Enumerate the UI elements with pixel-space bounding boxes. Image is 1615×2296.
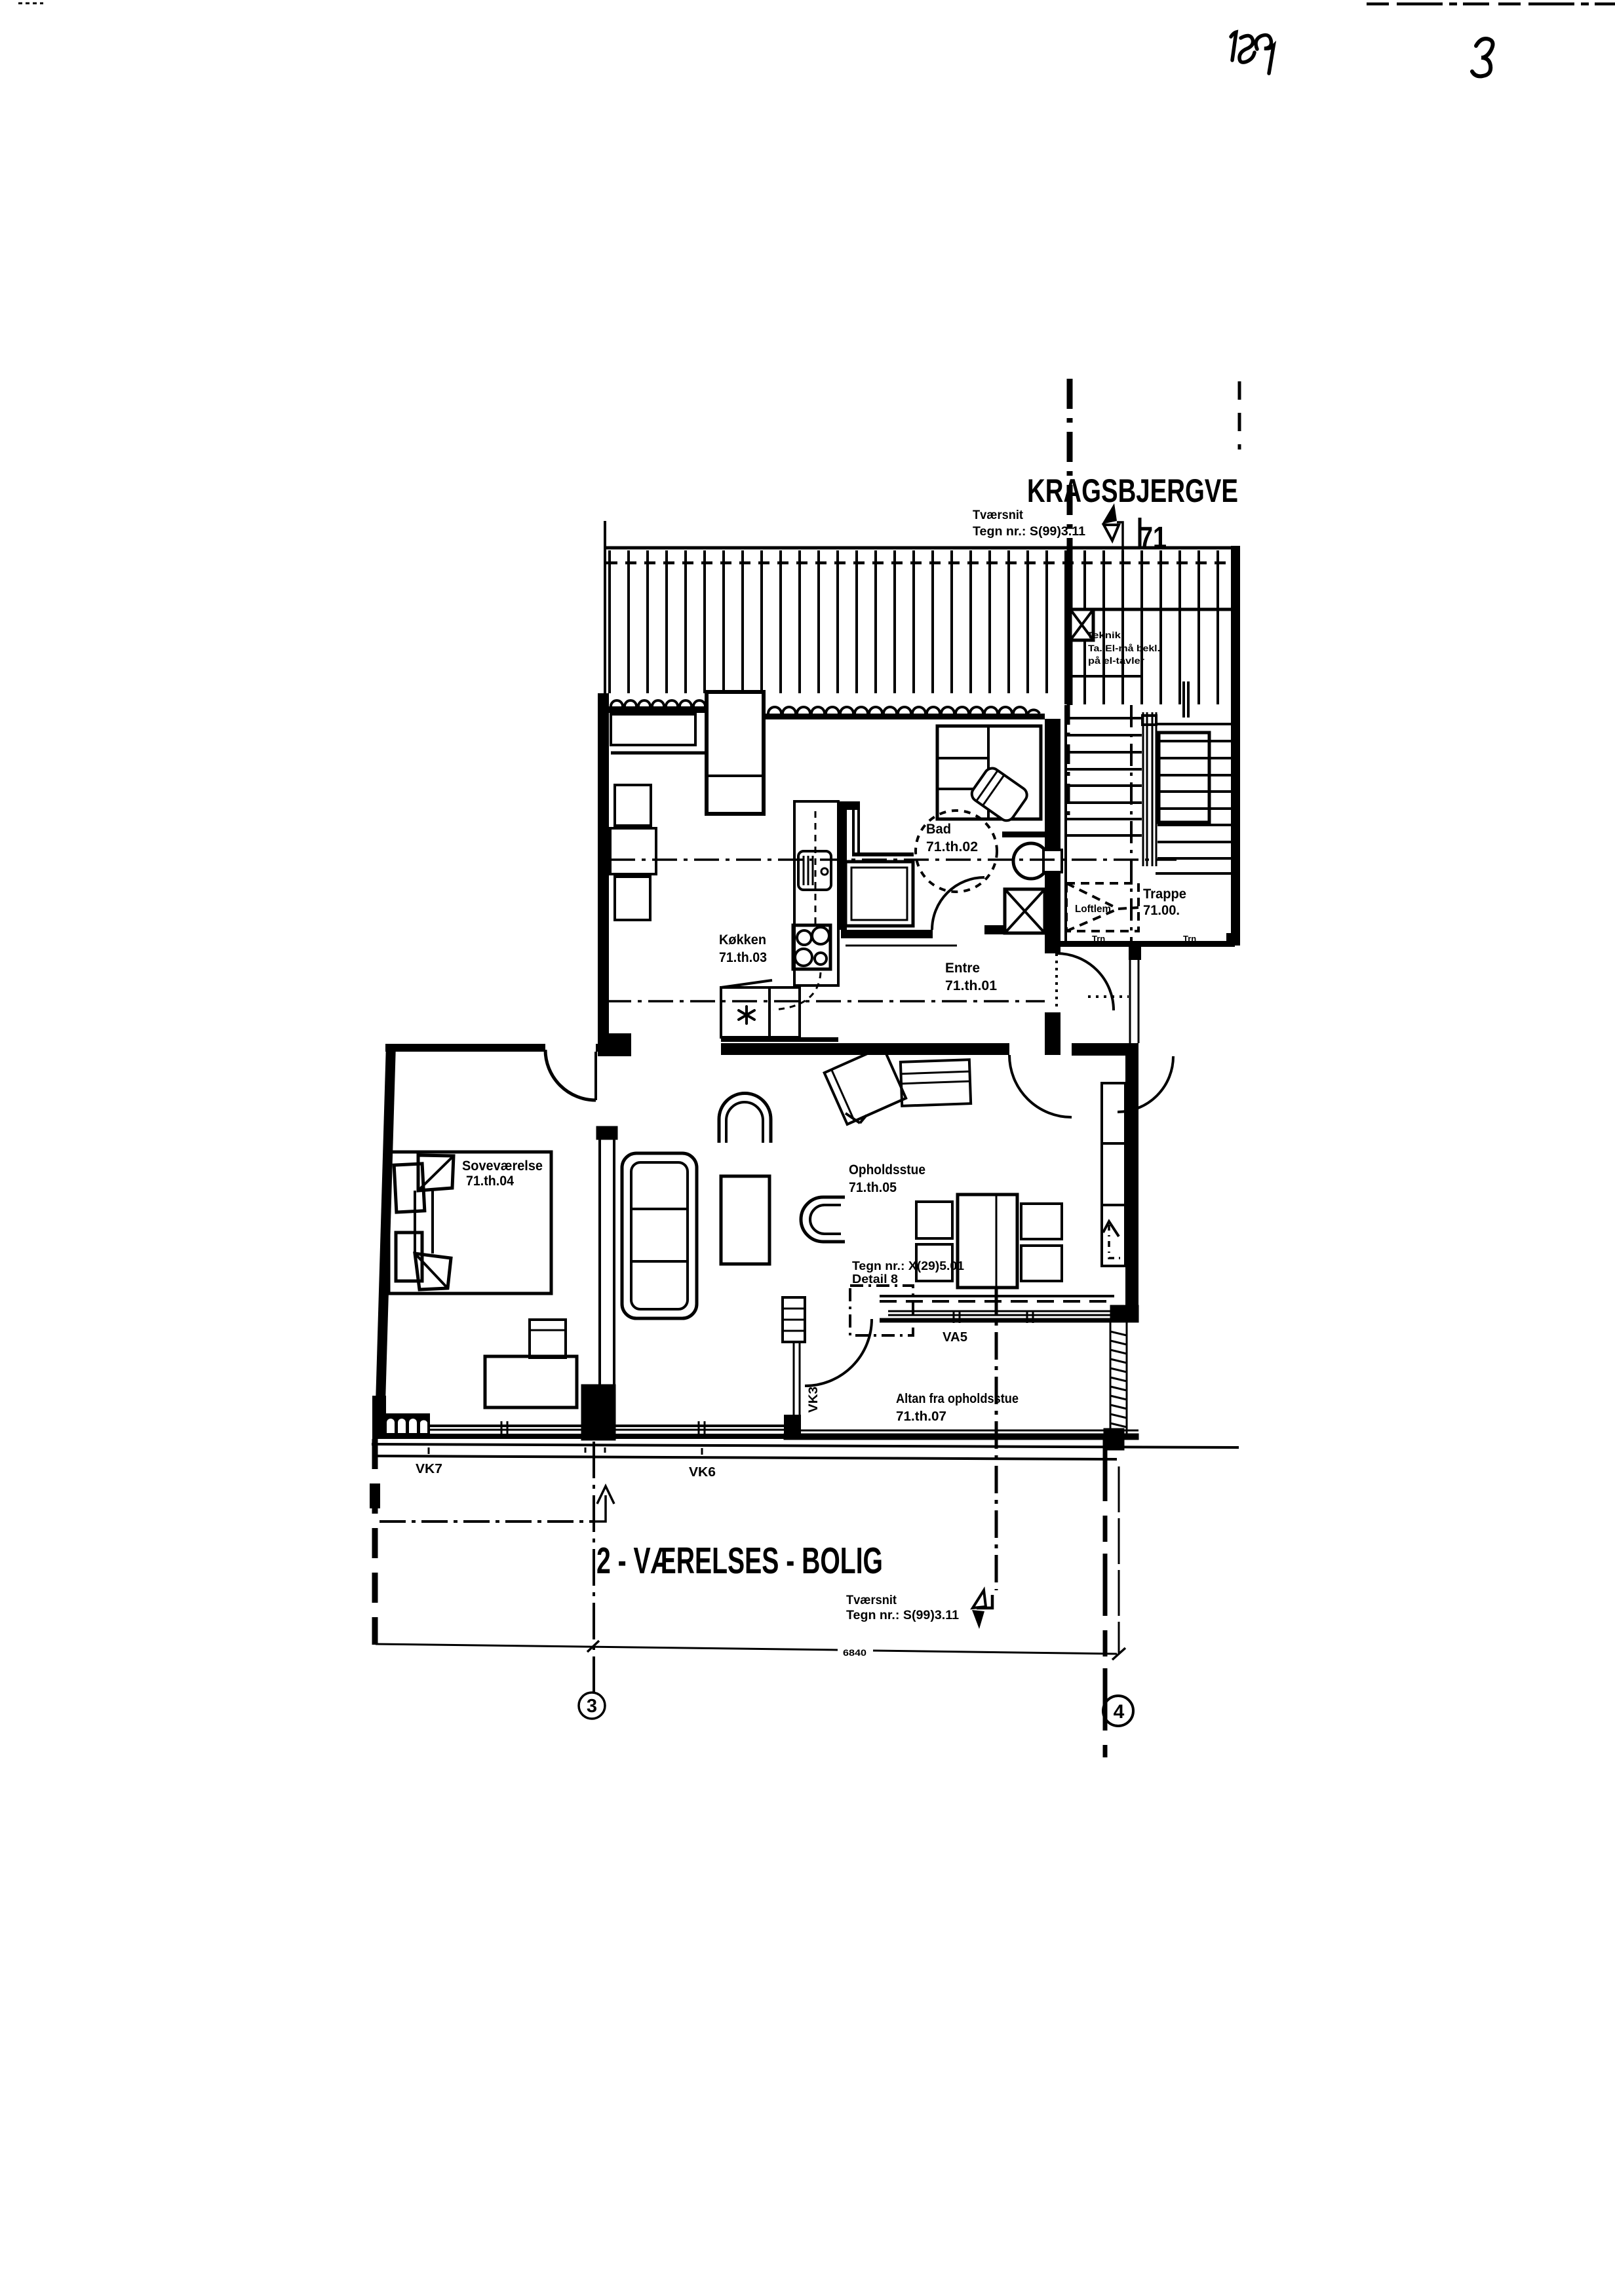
svg-text:Tegn nr.: X(29)5.01: Tegn nr.: X(29)5.01 (852, 1259, 964, 1272)
svg-text:Trn: Trn (1092, 934, 1105, 944)
svg-text:Entre: Entre (945, 961, 980, 976)
svg-text:Loftlem: Loftlem (1075, 904, 1111, 915)
svg-text:2 - VÆRELSES - BOLIG: 2 - VÆRELSES - BOLIG (596, 1540, 883, 1582)
svg-text:Bad: Bad (926, 822, 951, 837)
svg-text:71.00.: 71.00. (1143, 903, 1180, 918)
svg-text:VK7: VK7 (416, 1462, 442, 1476)
svg-text:Opholdsstue: Opholdsstue (849, 1162, 925, 1177)
svg-text:71.th.03: 71.th.03 (719, 950, 767, 965)
svg-text:Tværsnit: Tværsnit (973, 508, 1024, 522)
svg-text:Trappe: Trappe (1143, 887, 1186, 902)
svg-text:71.th.04: 71.th.04 (466, 1174, 514, 1189)
svg-text:3: 3 (587, 1696, 597, 1717)
svg-text:6840: 6840 (843, 1647, 866, 1658)
svg-text:71.th.02: 71.th.02 (926, 839, 978, 854)
svg-text:KRAGSBJERGVE: KRAGSBJERGVE (1027, 472, 1238, 509)
svg-text:VK3: VK3 (807, 1387, 821, 1413)
svg-text:VK6: VK6 (689, 1465, 716, 1480)
svg-text:på el-tavler: på el-tavler (1088, 655, 1145, 666)
svg-text:Trn: Trn (1183, 934, 1196, 944)
svg-text:71.th.05: 71.th.05 (849, 1180, 897, 1195)
svg-text:71.th.07: 71.th.07 (896, 1409, 946, 1424)
svg-text:Ta. El-må bekl.: Ta. El-må bekl. (1088, 643, 1160, 653)
svg-text:Soveværelse: Soveværelse (462, 1158, 543, 1174)
svg-text:Køkken: Køkken (719, 932, 766, 947)
svg-text:Altan fra opholdsstue: Altan fra opholdsstue (896, 1392, 1019, 1406)
svg-text:4: 4 (1114, 1701, 1125, 1723)
svg-text:VA5: VA5 (943, 1330, 967, 1345)
svg-text:Tegn nr.: S(99)3.11: Tegn nr.: S(99)3.11 (846, 1609, 959, 1622)
svg-text:Teknik: Teknik (1087, 630, 1121, 640)
svg-text:Tværsnit: Tværsnit (846, 1594, 897, 1607)
svg-text:Tegn nr.: S(99)3.11: Tegn nr.: S(99)3.11 (973, 525, 1085, 539)
svg-text:71.th.01: 71.th.01 (945, 978, 997, 993)
svg-text:Detail 8: Detail 8 (852, 1272, 898, 1286)
